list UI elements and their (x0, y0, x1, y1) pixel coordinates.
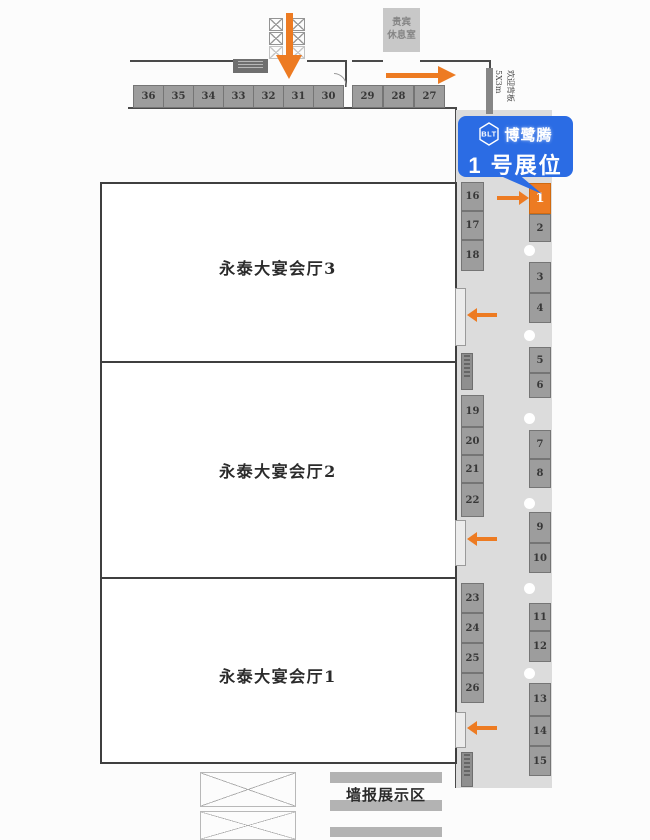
poster-table-x-icon (200, 772, 296, 807)
hall1-label: 永泰大宴会厅1 (219, 663, 337, 687)
corridor (456, 110, 552, 788)
table-x-icon (269, 32, 283, 45)
route-right-arrow-icon (386, 73, 438, 78)
booth-31: 31 (283, 85, 314, 108)
floorplan: 贵宾 休息室 欢迎背板 5X3m 永泰大宴会厅3 永泰大宴会厅2 永泰大宴会厅1… (0, 0, 650, 840)
booth-29: 29 (352, 85, 383, 108)
door-arrow-icon (467, 721, 477, 735)
hall2-side-door (455, 520, 466, 566)
corridor-mini-label-lower (461, 752, 473, 787)
door-arrow-shaft (477, 537, 497, 541)
table-x-icon (291, 18, 305, 31)
wall-top-right (420, 60, 490, 62)
poster-area-label: 墙报展示区 (330, 784, 442, 805)
booth-35: 35 (163, 85, 194, 108)
brand-row: BLT 博鹭腾 (478, 122, 552, 146)
corridor-mini-label-upper (461, 353, 473, 390)
booth-34: 34 (193, 85, 224, 108)
vip-lounge-box: 贵宾 休息室 (383, 8, 420, 52)
poster-board-bar (330, 772, 442, 783)
wall-top-mid (307, 60, 345, 62)
hall-divider-2-1 (100, 577, 457, 579)
table-x-icon (291, 32, 305, 45)
booth-28: 28 (383, 85, 414, 108)
poster-board-bar (330, 827, 442, 837)
hall3-side-door (455, 288, 466, 346)
arrow-to-booth1-head-icon (519, 191, 529, 205)
tiny-text (464, 754, 470, 775)
booth-32: 32 (253, 85, 284, 108)
door-arrow-icon (467, 532, 477, 546)
hall3-label: 永泰大宴会厅3 (219, 255, 337, 279)
booth-30: 30 (313, 85, 344, 108)
wall-under-top-booths (128, 107, 457, 109)
door-arrow-icon (467, 308, 477, 322)
vip-lounge-label-line2: 休息室 (387, 30, 416, 43)
door-arrow-shaft (477, 726, 497, 730)
hall1-side-door (455, 712, 466, 748)
blt-hexagon-logo-icon: BLT (478, 122, 500, 146)
hall-divider-3-2 (100, 361, 457, 363)
door-arrow-shaft (477, 313, 497, 317)
booth1-callout-label: 1 号展位 (468, 148, 562, 180)
booth-33: 33 (223, 85, 254, 108)
booth-27: 27 (414, 85, 445, 108)
wall-top-mid2 (352, 60, 383, 62)
booth1-callout: BLT 博鹭腾 1 号展位 (458, 116, 573, 177)
table-x-icon (269, 18, 283, 31)
arrow-to-booth1 (497, 196, 519, 200)
poster-table-x-icon (200, 811, 296, 840)
booth-36: 36 (133, 85, 164, 108)
entrance-down-arrow-icon (286, 13, 293, 57)
service-desk-box (233, 59, 268, 73)
tiny-text (464, 355, 470, 378)
entrance-down-arrowhead-icon (276, 55, 302, 79)
welcome-board-bar (486, 68, 493, 114)
route-right-arrowhead-icon (438, 66, 456, 84)
hall2-label: 永泰大宴会厅2 (219, 458, 337, 482)
tiny-text (238, 61, 263, 69)
brand-name: 博鹭腾 (504, 124, 552, 145)
vip-lounge-label-line1: 贵宾 (392, 17, 411, 30)
blt-logo-text: BLT (482, 130, 498, 139)
